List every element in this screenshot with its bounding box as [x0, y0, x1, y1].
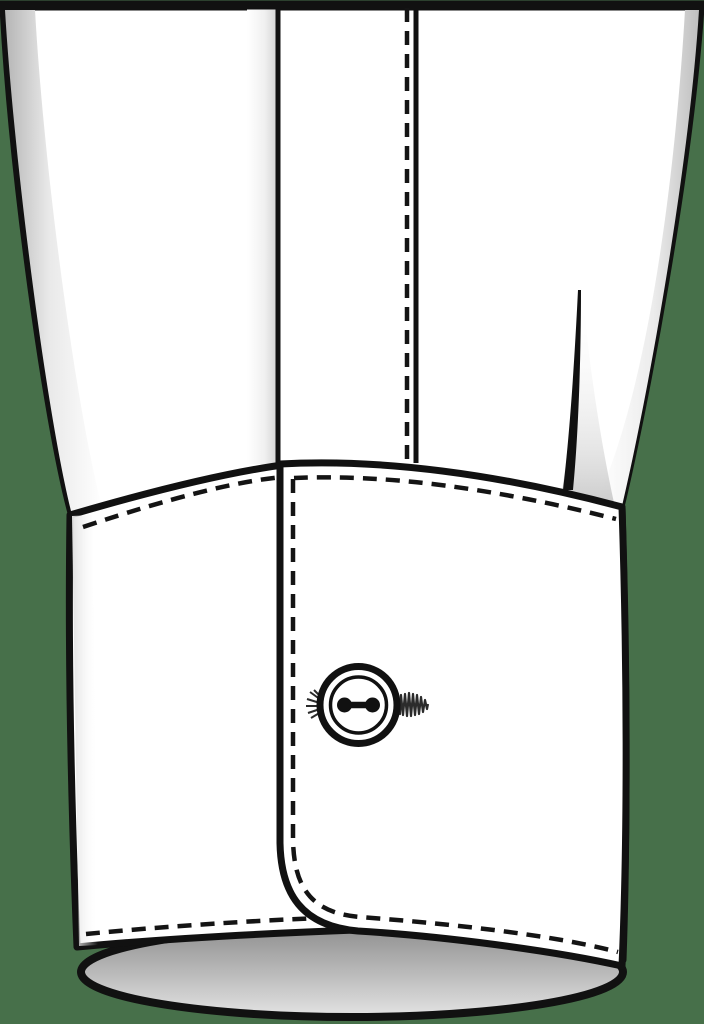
button-hole-right-icon	[365, 698, 380, 713]
button-hole-left-icon	[337, 698, 352, 713]
cuff-illustration	[0, 0, 704, 1024]
illustration-stage	[0, 0, 704, 1024]
sleeve	[0, 5, 704, 513]
placket-shading	[247, 9, 276, 464]
